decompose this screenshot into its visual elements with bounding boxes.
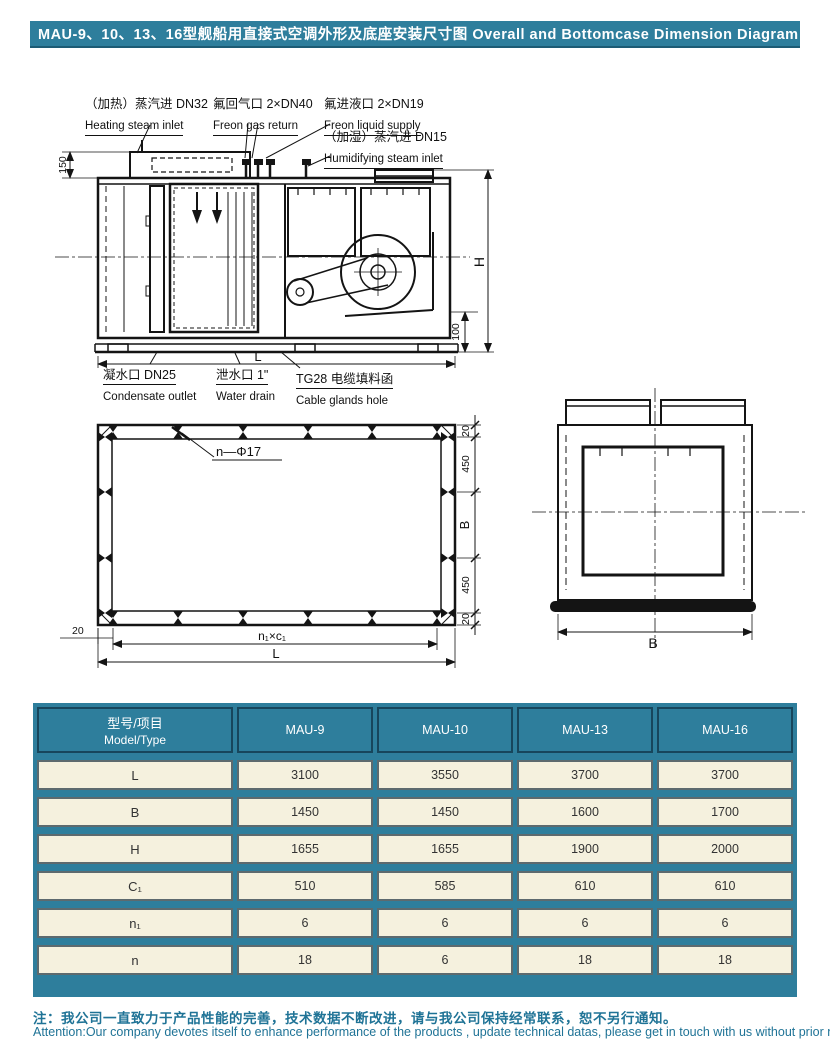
row-label: n₁ <box>37 908 233 938</box>
note-english: Attention:Our company devotes itself to … <box>33 1025 830 1039</box>
header-mau10: MAU-10 <box>377 707 513 753</box>
label-heating-steam-zh: （加热）蒸汽进 DN32 <box>85 96 208 112</box>
plan-dimensions: 20 450 B 450 20 20 n₁×c₁ L <box>60 415 481 668</box>
table-header-row: 型号/项目 Model/Type MAU-9 MAU-10 MAU-13 MAU… <box>37 707 793 753</box>
header-mau16: MAU-16 <box>657 707 793 753</box>
cell-value: 2000 <box>657 834 793 864</box>
dim-left-20: 20 <box>72 625 84 637</box>
label-heating-steam-en: Heating steam inlet <box>85 119 183 136</box>
plan-view: n—Φ17 <box>98 425 455 625</box>
row-label: C₁ <box>37 871 233 901</box>
cell-value: 6 <box>377 908 513 938</box>
page-title: MAU-9、10、13、16型舰船用直接式空调外形及底座安装尺寸图 Overal… <box>30 21 800 48</box>
cell-value: 1450 <box>377 797 513 827</box>
dim-H: H <box>471 257 487 267</box>
dim-hole-callout: n—Φ17 <box>216 444 261 459</box>
label-water-drain-en: Water drain <box>216 390 275 405</box>
table-row: C₁ 510 585 610 610 <box>37 871 793 901</box>
cell-value: 610 <box>657 871 793 901</box>
front-view <box>55 140 470 352</box>
cell-value: 6 <box>517 908 653 938</box>
label-water-drain-zh: 泄水口 1" <box>216 367 268 385</box>
header-model-zh: 型号/项目 <box>107 713 163 732</box>
row-label: L <box>37 760 233 790</box>
dimension-table: 型号/项目 Model/Type MAU-9 MAU-10 MAU-13 MAU… <box>33 703 797 997</box>
dim-spacing: n₁×c₁ <box>258 629 286 643</box>
dim-right-450b: 450 <box>460 576 472 594</box>
cell-value: 6 <box>377 945 513 975</box>
row-label: n <box>37 945 233 975</box>
cell-value: 510 <box>237 871 373 901</box>
cell-value: 3100 <box>237 760 373 790</box>
pipe-fittings <box>242 159 311 165</box>
label-freon-gas-zh: 氟回气口 2×DN40 <box>213 96 313 112</box>
dim-right-450a: 450 <box>460 455 472 473</box>
label-water-drain: 泄水口 1" Water drain <box>216 365 275 407</box>
cell-value: 585 <box>377 871 513 901</box>
dim-front-L: L <box>254 349 261 364</box>
table-row: H 1655 1655 1900 2000 <box>37 834 793 864</box>
cell-value: 3550 <box>377 760 513 790</box>
cell-value: 6 <box>237 908 373 938</box>
cell-value: 1700 <box>657 797 793 827</box>
label-heating-steam: （加热）蒸汽进 DN32 Heating steam inlet <box>85 94 208 136</box>
dim-100: 100 <box>450 323 462 341</box>
label-freon-gas: 氟回气口 2×DN40 Freon gas return <box>213 94 313 136</box>
cell-value: 1600 <box>517 797 653 827</box>
end-view: B <box>532 388 808 651</box>
dim-plan-L: L <box>272 646 279 661</box>
cell-value: 3700 <box>517 760 653 790</box>
label-condensate-en: Condensate outlet <box>103 390 196 405</box>
table-row: n₁ 6 6 6 6 <box>37 908 793 938</box>
cell-value: 1655 <box>377 834 513 864</box>
label-humidifying-steam-zh: （加湿）蒸汽进 DN15 <box>324 129 447 145</box>
dim-right-20a: 20 <box>460 425 472 437</box>
row-label: H <box>37 834 233 864</box>
dim-end-B: B <box>648 635 657 651</box>
table-row: L 3100 3550 3700 3700 <box>37 760 793 790</box>
label-condensate-zh: 凝水口 DN25 <box>103 367 176 385</box>
note-chinese: 注：我公司一直致力于产品性能的完善，技术数据不断改进，请与我公司保持经常联系，恕… <box>33 1007 677 1027</box>
cell-value: 1900 <box>517 834 653 864</box>
label-freon-gas-en: Freon gas return <box>213 119 298 136</box>
row-label: B <box>37 797 233 827</box>
cell-value: 1450 <box>237 797 373 827</box>
cell-value: 6 <box>657 908 793 938</box>
label-humidifying-steam-en: Humidifying steam inlet <box>324 152 443 169</box>
catalog-page: MAU-9、10、13、16型舰船用直接式空调外形及底座安装尺寸图 Overal… <box>0 0 830 1050</box>
cell-value: 610 <box>517 871 653 901</box>
label-humidifying-steam: （加湿）蒸汽进 DN15 Humidifying steam inlet <box>324 127 447 169</box>
table-row: n 18 6 18 18 <box>37 945 793 975</box>
label-cable-glands: TG28 电缆填料函 Cable glands hole <box>296 369 393 411</box>
table-row: B 1450 1450 1600 1700 <box>37 797 793 827</box>
cell-value: 1655 <box>237 834 373 864</box>
dim-right-20b: 20 <box>460 613 472 625</box>
cell-value: 18 <box>517 945 653 975</box>
header-mau13: MAU-13 <box>517 707 653 753</box>
header-model-type: 型号/项目 Model/Type <box>37 707 233 753</box>
dim-150: 150 <box>57 156 69 174</box>
header-model-en: Model/Type <box>104 733 166 747</box>
label-cable-glands-en: Cable glands hole <box>296 394 388 409</box>
cell-value: 18 <box>237 945 373 975</box>
dim-right-B: B <box>457 521 472 530</box>
cell-value: 3700 <box>657 760 793 790</box>
label-freon-liquid-zh: 氟进液口 2×DN19 <box>324 96 424 112</box>
header-mau9: MAU-9 <box>237 707 373 753</box>
cell-value: 18 <box>657 945 793 975</box>
label-condensate: 凝水口 DN25 Condensate outlet <box>103 365 196 407</box>
label-cable-glands-zh: TG28 电缆填料函 <box>296 371 393 389</box>
